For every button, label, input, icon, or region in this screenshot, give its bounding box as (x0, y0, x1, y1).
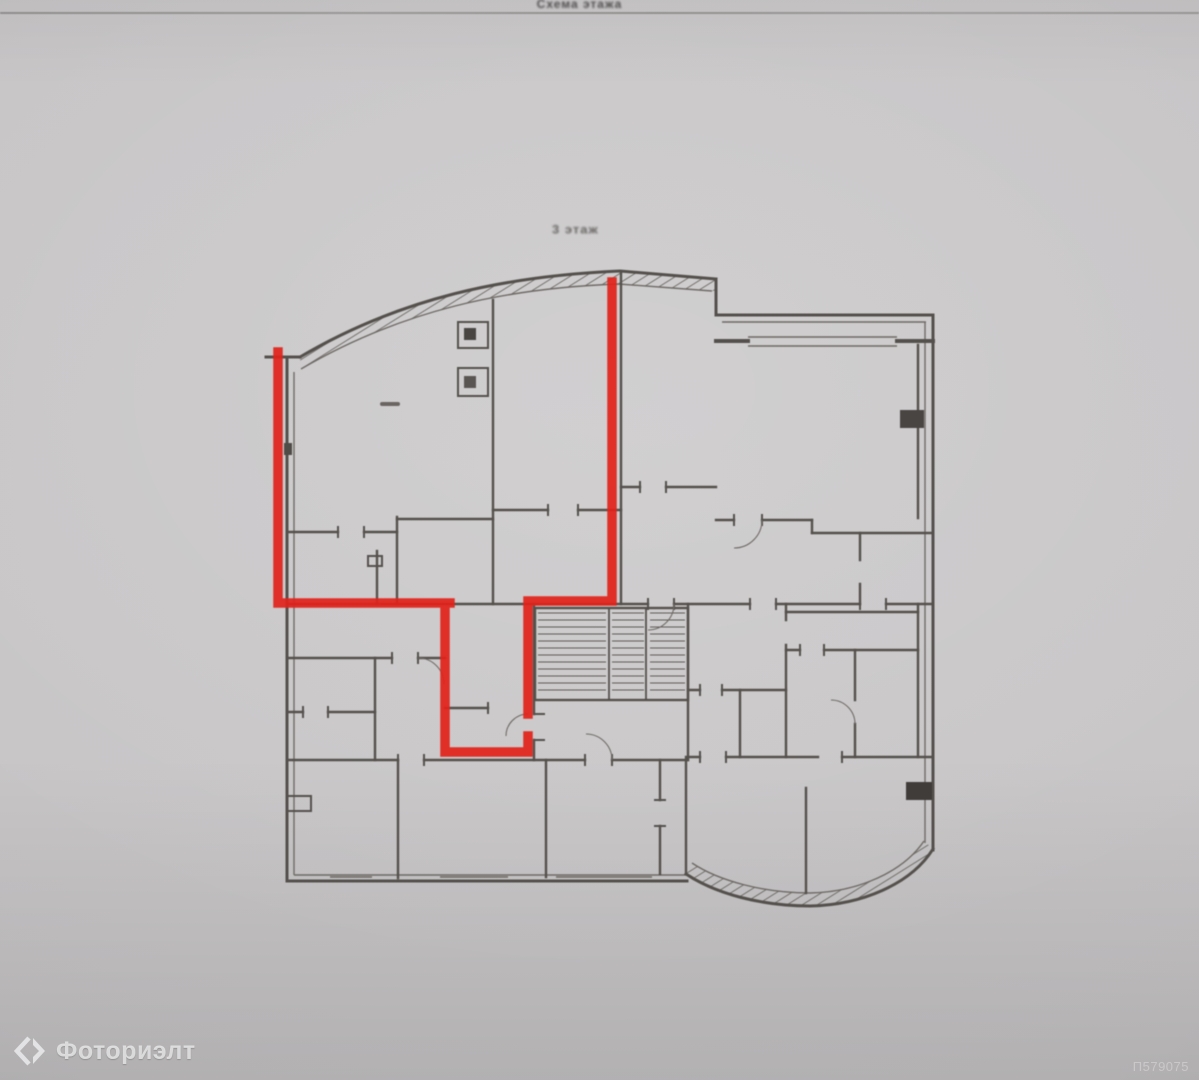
fotorielt-logo-icon (14, 1036, 48, 1066)
watermark-brand-text: Фоториэлт (56, 1037, 196, 1066)
photo-id: П579075 (1133, 1059, 1189, 1074)
door-arcs (418, 520, 855, 760)
wall-lines (266, 271, 933, 906)
floor-plan-photo: Схема этажа 3 этаж (0, 0, 1199, 1080)
window-hatch-top-curve (300, 271, 716, 369)
window-hatch-bottom-bay (686, 841, 933, 906)
staircase (535, 608, 688, 700)
watermark: Фоториэлт (14, 1036, 196, 1066)
floor-plan-svg (0, 0, 1199, 1080)
